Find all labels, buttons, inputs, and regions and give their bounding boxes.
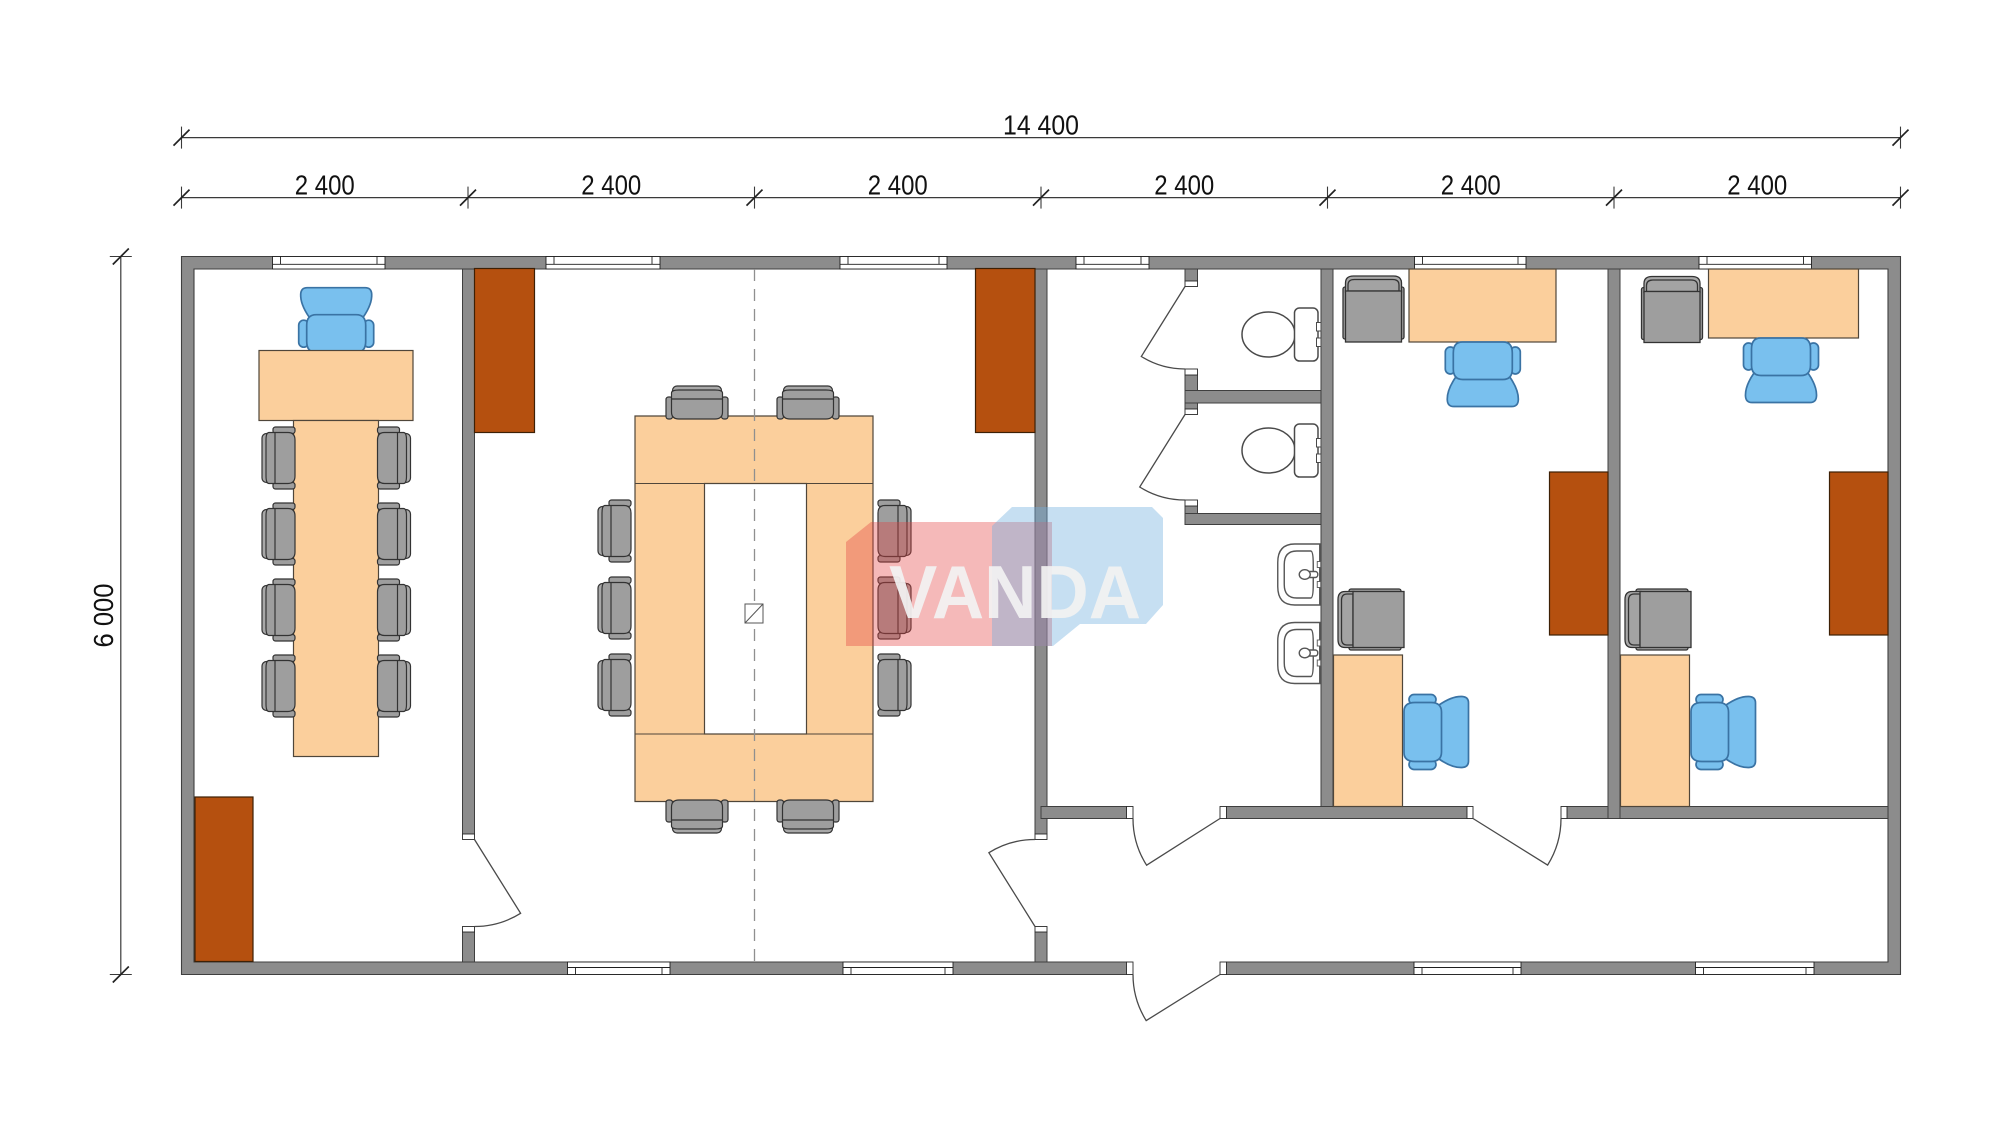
svg-text:2 400: 2 400 bbox=[295, 169, 355, 200]
svg-text:2 400: 2 400 bbox=[1727, 169, 1787, 200]
svg-text:6 000: 6 000 bbox=[88, 584, 119, 648]
svg-text:2 400: 2 400 bbox=[868, 169, 928, 200]
svg-text:14 400: 14 400 bbox=[1003, 110, 1079, 141]
svg-text:VANDA: VANDA bbox=[889, 550, 1141, 634]
svg-text:2 400: 2 400 bbox=[1441, 169, 1501, 200]
svg-text:2 400: 2 400 bbox=[1154, 169, 1214, 200]
svg-text:2 400: 2 400 bbox=[581, 169, 641, 200]
